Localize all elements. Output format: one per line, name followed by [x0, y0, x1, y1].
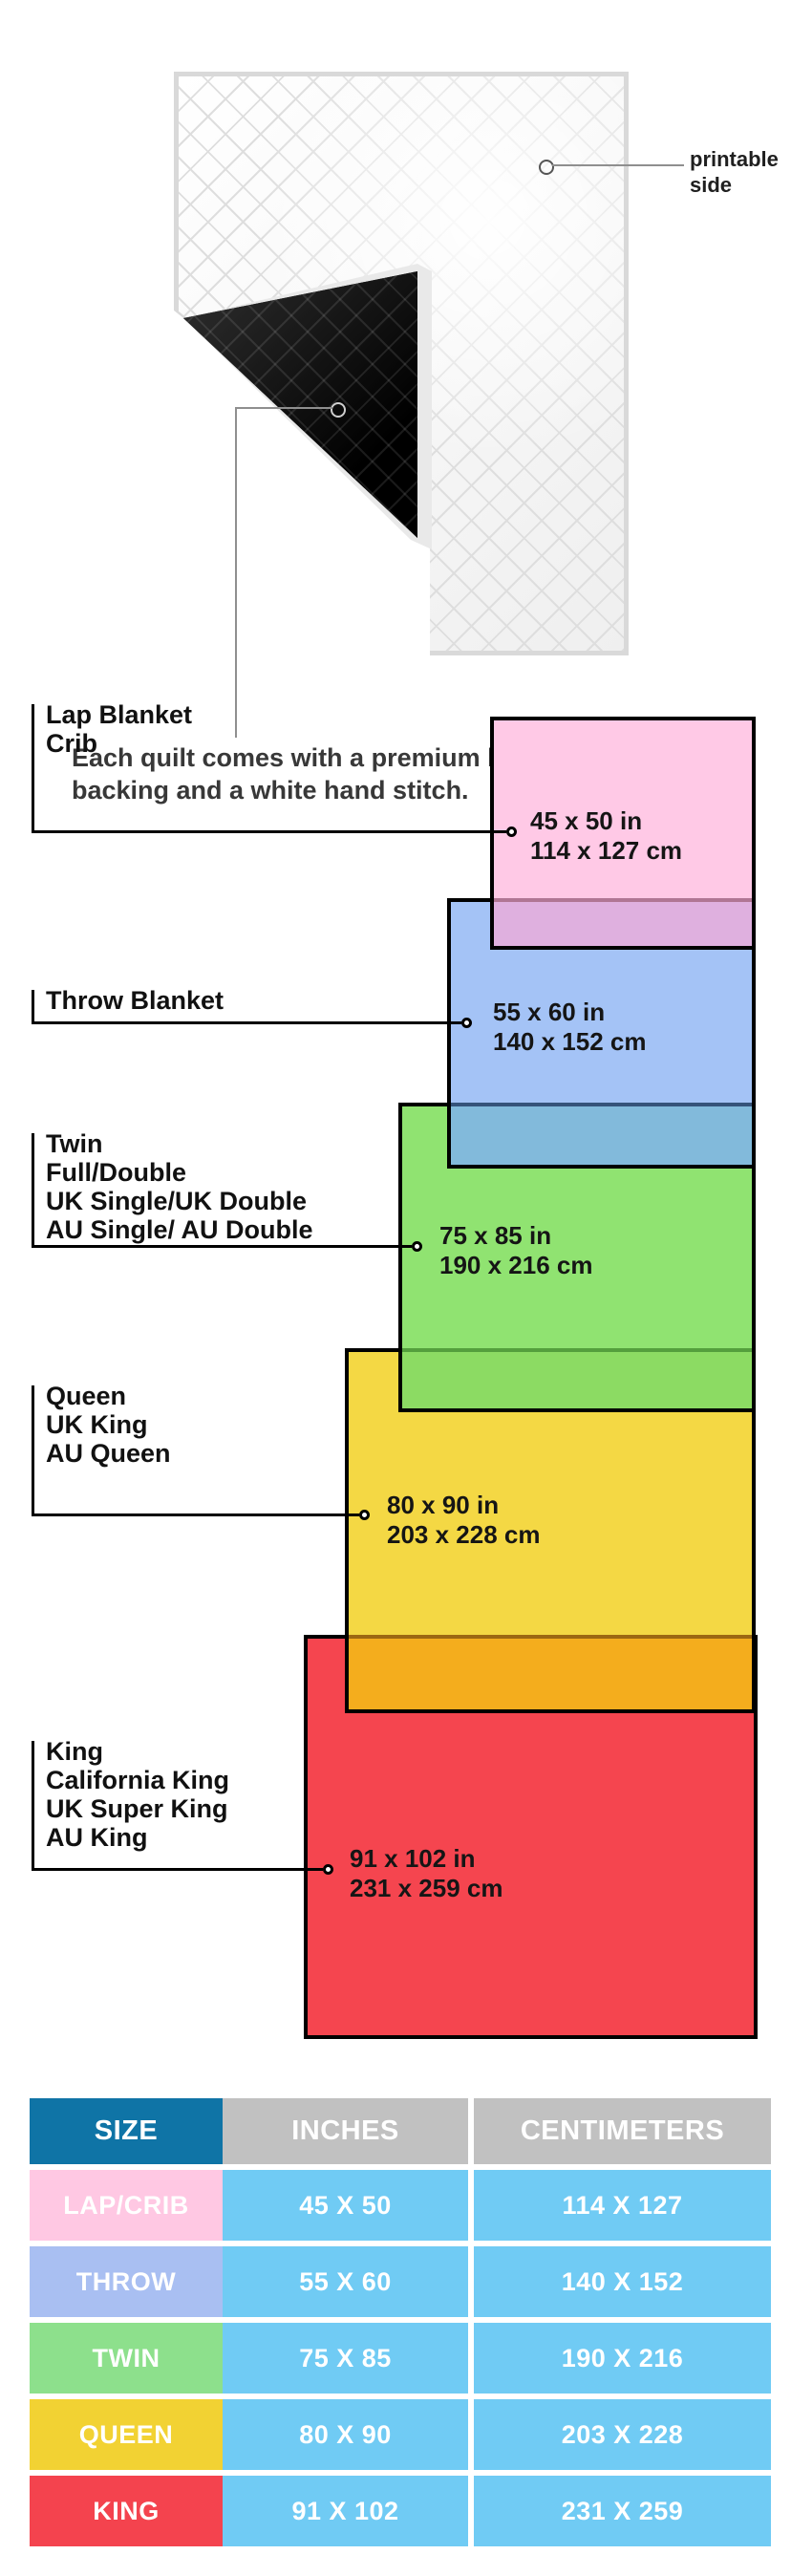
cell-size: TWIN	[30, 2323, 223, 2394]
cell-inches: 91 X 102	[223, 2476, 468, 2546]
printable-side-label-line1: printable	[690, 146, 779, 172]
leader-twin	[32, 1245, 412, 1248]
cell-size: THROW	[30, 2246, 223, 2317]
overlap-lap-throw	[494, 898, 752, 946]
header-centimeters: CENTIMETERS	[474, 2098, 771, 2164]
dims-queen: 80 x 90 in 203 x 228 cm	[387, 1491, 540, 1550]
label-line-king	[32, 1741, 34, 1871]
table-row-king: KING 91 X 102 231 X 259	[30, 2476, 771, 2546]
leader-king	[32, 1868, 323, 1871]
label-line-twin	[32, 1133, 34, 1248]
dot-king	[323, 1864, 333, 1875]
leader-lap	[32, 830, 506, 833]
dot-twin	[412, 1241, 422, 1252]
printable-side-leader-line	[552, 164, 684, 166]
cell-size: LAP/CRIB	[30, 2170, 223, 2241]
label-throw: Throw Blanket	[46, 986, 224, 1015]
printable-side-label: printable side	[690, 146, 779, 198]
cell-centimeters: 203 X 228	[474, 2399, 771, 2470]
header-inches: INCHES	[223, 2098, 468, 2164]
dot-lap	[506, 826, 517, 837]
dot-queen	[359, 1510, 370, 1520]
dims-king: 91 x 102 in 231 x 259 cm	[350, 1844, 502, 1903]
cell-inches: 45 X 50	[223, 2170, 468, 2241]
quilt-size-chart-infographic: printable side Each quilt comes with a p…	[0, 0, 791, 2576]
dot-throw	[461, 1018, 472, 1028]
label-queen: Queen UK King AU Queen	[46, 1382, 171, 1468]
cell-size: QUEEN	[30, 2399, 223, 2470]
cell-inches: 75 X 85	[223, 2323, 468, 2394]
cell-inches: 55 X 60	[223, 2246, 468, 2317]
cell-centimeters: 114 X 127	[474, 2170, 771, 2241]
table-row-throw: THROW 55 X 60 140 X 152	[30, 2246, 771, 2317]
table-row-queen: QUEEN 80 X 90 203 X 228	[30, 2399, 771, 2470]
cell-centimeters: 140 X 152	[474, 2246, 771, 2317]
leader-queen	[32, 1513, 359, 1516]
table-row-twin: TWIN 75 X 85 190 X 216	[30, 2323, 771, 2394]
printable-side-marker-icon	[539, 160, 554, 175]
backing-leader-line-vertical	[235, 407, 237, 738]
table-row-lap-crib: LAP/CRIB 45 X 50 114 X 127	[30, 2170, 771, 2241]
label-king: King California King UK Super King AU Ki…	[46, 1737, 229, 1852]
printable-side-label-line2: side	[690, 172, 779, 198]
backing-marker-icon	[331, 402, 346, 418]
cell-centimeters: 231 X 259	[474, 2476, 771, 2546]
label-lap-crib: Lap Blanket Crib	[46, 700, 192, 758]
cell-inches: 80 X 90	[223, 2399, 468, 2470]
dims-throw: 55 x 60 in 140 x 152 cm	[493, 998, 646, 1057]
label-line-queen	[32, 1385, 34, 1516]
size-table-header: SIZE INCHES CENTIMETERS	[30, 2098, 771, 2164]
overlap-queen-king	[349, 1635, 752, 1709]
dims-lap: 45 x 50 in 114 x 127 cm	[530, 806, 682, 866]
dims-twin: 75 x 85 in 190 x 216 cm	[439, 1221, 592, 1280]
label-line-lap	[32, 704, 34, 833]
size-table: SIZE INCHES CENTIMETERS LAP/CRIB 45 X 50…	[30, 2098, 771, 2546]
backing-leader-line-horizontal	[236, 407, 332, 409]
label-line-throw	[32, 990, 34, 1024]
cell-size: KING	[30, 2476, 223, 2546]
label-twin: Twin Full/Double UK Single/UK Double AU …	[46, 1129, 313, 1244]
overlap-twin-queen	[402, 1348, 752, 1408]
header-size: SIZE	[30, 2098, 223, 2164]
overlap-throw-twin	[451, 1103, 752, 1165]
cell-centimeters: 190 X 216	[474, 2323, 771, 2394]
leader-throw	[32, 1021, 461, 1024]
